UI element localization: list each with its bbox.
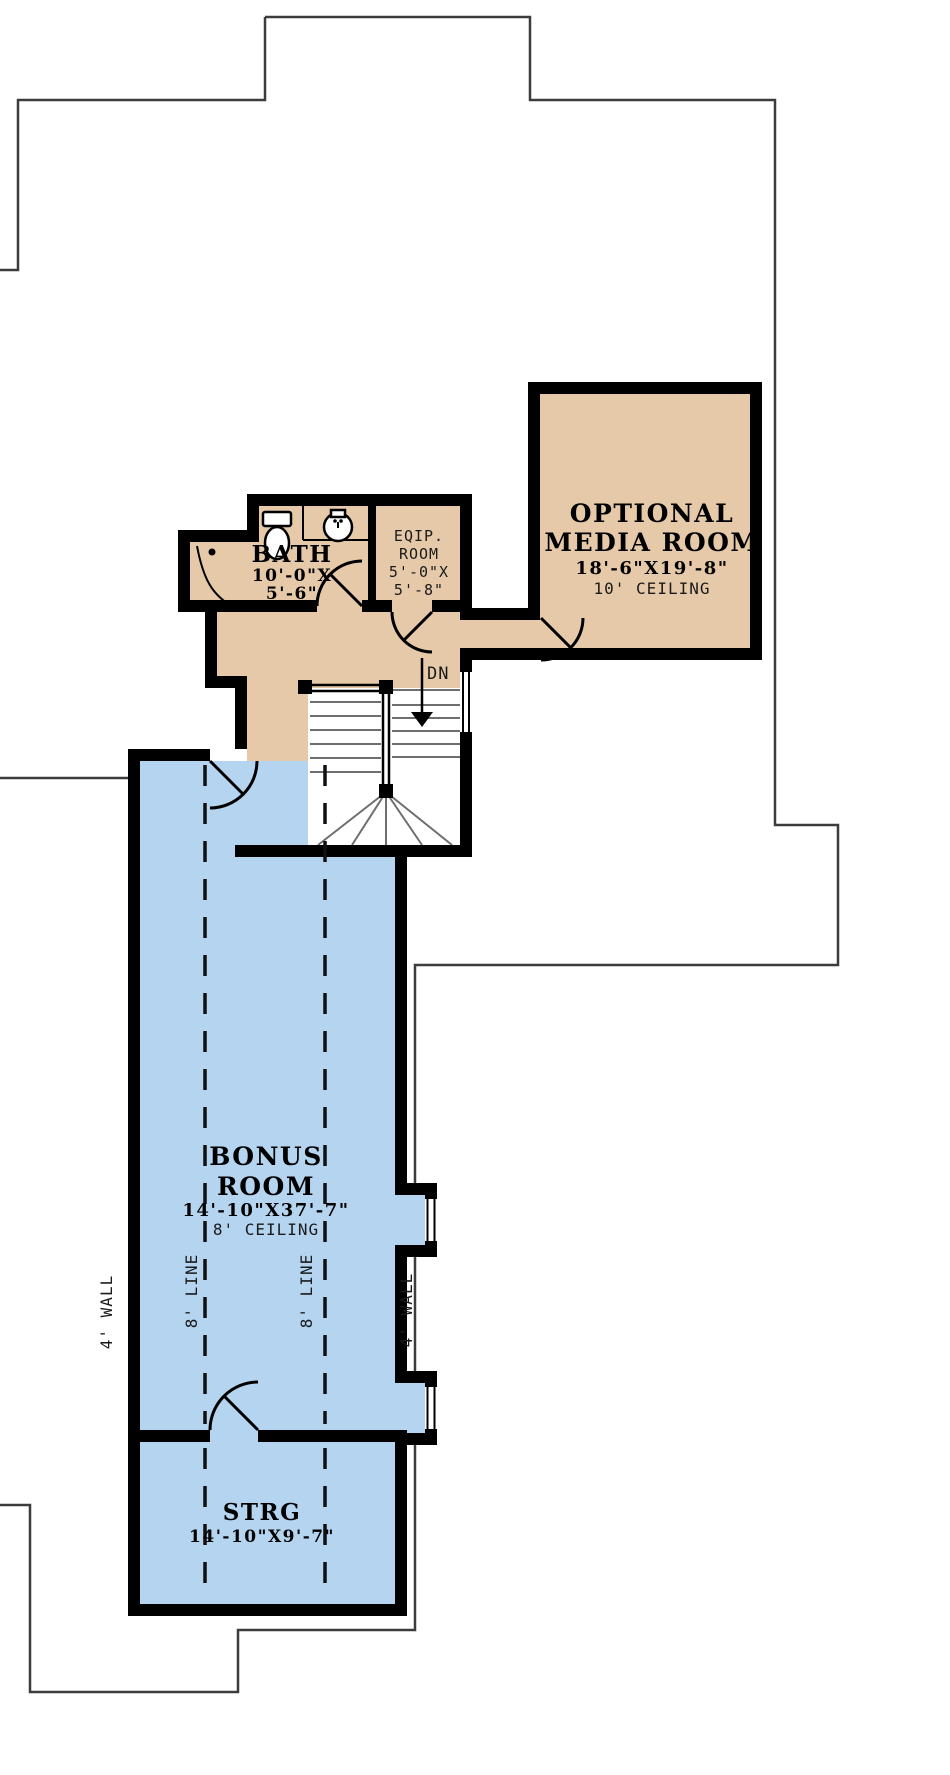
strg-divider-wall xyxy=(258,1430,407,1442)
floor-plan-drawing: OPTIONAL MEDIA ROOM 18'-6"X19'-8" 10' CE… xyxy=(0,0,950,1775)
equip-room-label: EQIP. xyxy=(394,527,444,545)
hall-east-wall xyxy=(460,494,472,608)
strg-dims: 14'-10"X9'-7" xyxy=(189,1527,335,1547)
shower-north-wall xyxy=(178,530,259,542)
stair-newel-post xyxy=(298,680,312,694)
sink-handle xyxy=(333,519,337,523)
ceiling-line-label-left: 8' LINE xyxy=(182,1254,201,1328)
media-room-label: MEDIA ROOM xyxy=(544,528,759,557)
equip-room-label: ROOM xyxy=(399,545,439,563)
strg-east-wall xyxy=(395,1445,407,1616)
stair-south-wall xyxy=(235,845,472,857)
dormer2-east-stub xyxy=(425,1429,437,1445)
toilet-tank xyxy=(263,512,291,526)
equip-south-wall-stub xyxy=(377,600,392,612)
stair-east-wall xyxy=(460,732,472,857)
strg-label: STRG xyxy=(223,1499,301,1526)
strg-divider-wall xyxy=(128,1430,210,1442)
shower-west-wall xyxy=(178,530,190,612)
media-room-dims: 18'-6"X19'-8" xyxy=(575,558,728,579)
dormer2-east-stub xyxy=(425,1371,437,1387)
bonus-north-wall xyxy=(128,749,210,761)
roof-outline-topleft xyxy=(0,17,265,270)
media-room-ceiling: 10' CEILING xyxy=(594,579,711,598)
dormer2-window xyxy=(425,1387,437,1429)
stair-hall-window xyxy=(460,672,472,732)
floor-plan-page: OPTIONAL MEDIA ROOM 18'-6"X19'-8" 10' CE… xyxy=(0,0,950,1775)
equip-south-wall-stub xyxy=(432,600,460,612)
stair-newel-post xyxy=(379,680,393,694)
bonus-room-dims: 14'-10"X37'-7" xyxy=(182,1200,349,1221)
strg-south-wall xyxy=(128,1604,407,1616)
media-west-wall xyxy=(528,382,540,612)
dormer2-floor xyxy=(395,1383,425,1433)
ceiling-line-label-right: 8' LINE xyxy=(297,1254,316,1328)
bath-label: BATH xyxy=(252,541,333,568)
corridor-west-wall xyxy=(235,688,247,749)
media-room-label: OPTIONAL xyxy=(570,499,734,528)
hall-floor xyxy=(217,600,460,688)
shower-drain xyxy=(209,549,216,556)
stair-newel-post xyxy=(379,784,393,798)
passage-floor xyxy=(460,620,540,648)
shower-nook-floor xyxy=(190,542,259,600)
dormer1-floor xyxy=(395,1195,425,1245)
bonus-west-wall xyxy=(128,749,140,1616)
bath-dims: 5'-6" xyxy=(266,584,318,604)
window-gap xyxy=(460,672,472,732)
sink-handle xyxy=(339,519,343,523)
bonus-room-ceiling: 8' CEILING xyxy=(213,1220,319,1239)
down-label: DN xyxy=(427,664,449,684)
stair-east-wall-stub xyxy=(460,660,472,672)
hall-west-wall xyxy=(205,600,217,676)
bonus-east-wall xyxy=(395,857,407,1183)
bath-north-wall xyxy=(247,494,462,506)
bonus-room-label: ROOM xyxy=(217,1172,315,1201)
dormer1-window xyxy=(425,1199,437,1241)
media-north-wall xyxy=(528,382,762,394)
media-east-wall xyxy=(750,382,762,660)
media-west-wall-stub xyxy=(528,652,540,660)
equip-room-dims: 5'-8" xyxy=(394,581,444,599)
wall-height-label-left: 4' WALL xyxy=(97,1275,116,1349)
bath-dims: 10'-0"X xyxy=(252,566,332,586)
hall-west-jog-wall xyxy=(205,676,247,688)
passage-media-south-wall xyxy=(460,648,762,660)
bonus-room-label: BONUS xyxy=(209,1142,323,1171)
wall-height-label-right: 4' WALL xyxy=(397,1273,416,1347)
equip-west-wall xyxy=(368,506,376,612)
sink-faucet xyxy=(331,510,345,517)
dormer1-east-stub xyxy=(425,1183,437,1199)
dormer1-east-stub xyxy=(425,1241,437,1257)
equip-room-dims: 5'-0"X xyxy=(389,563,449,581)
